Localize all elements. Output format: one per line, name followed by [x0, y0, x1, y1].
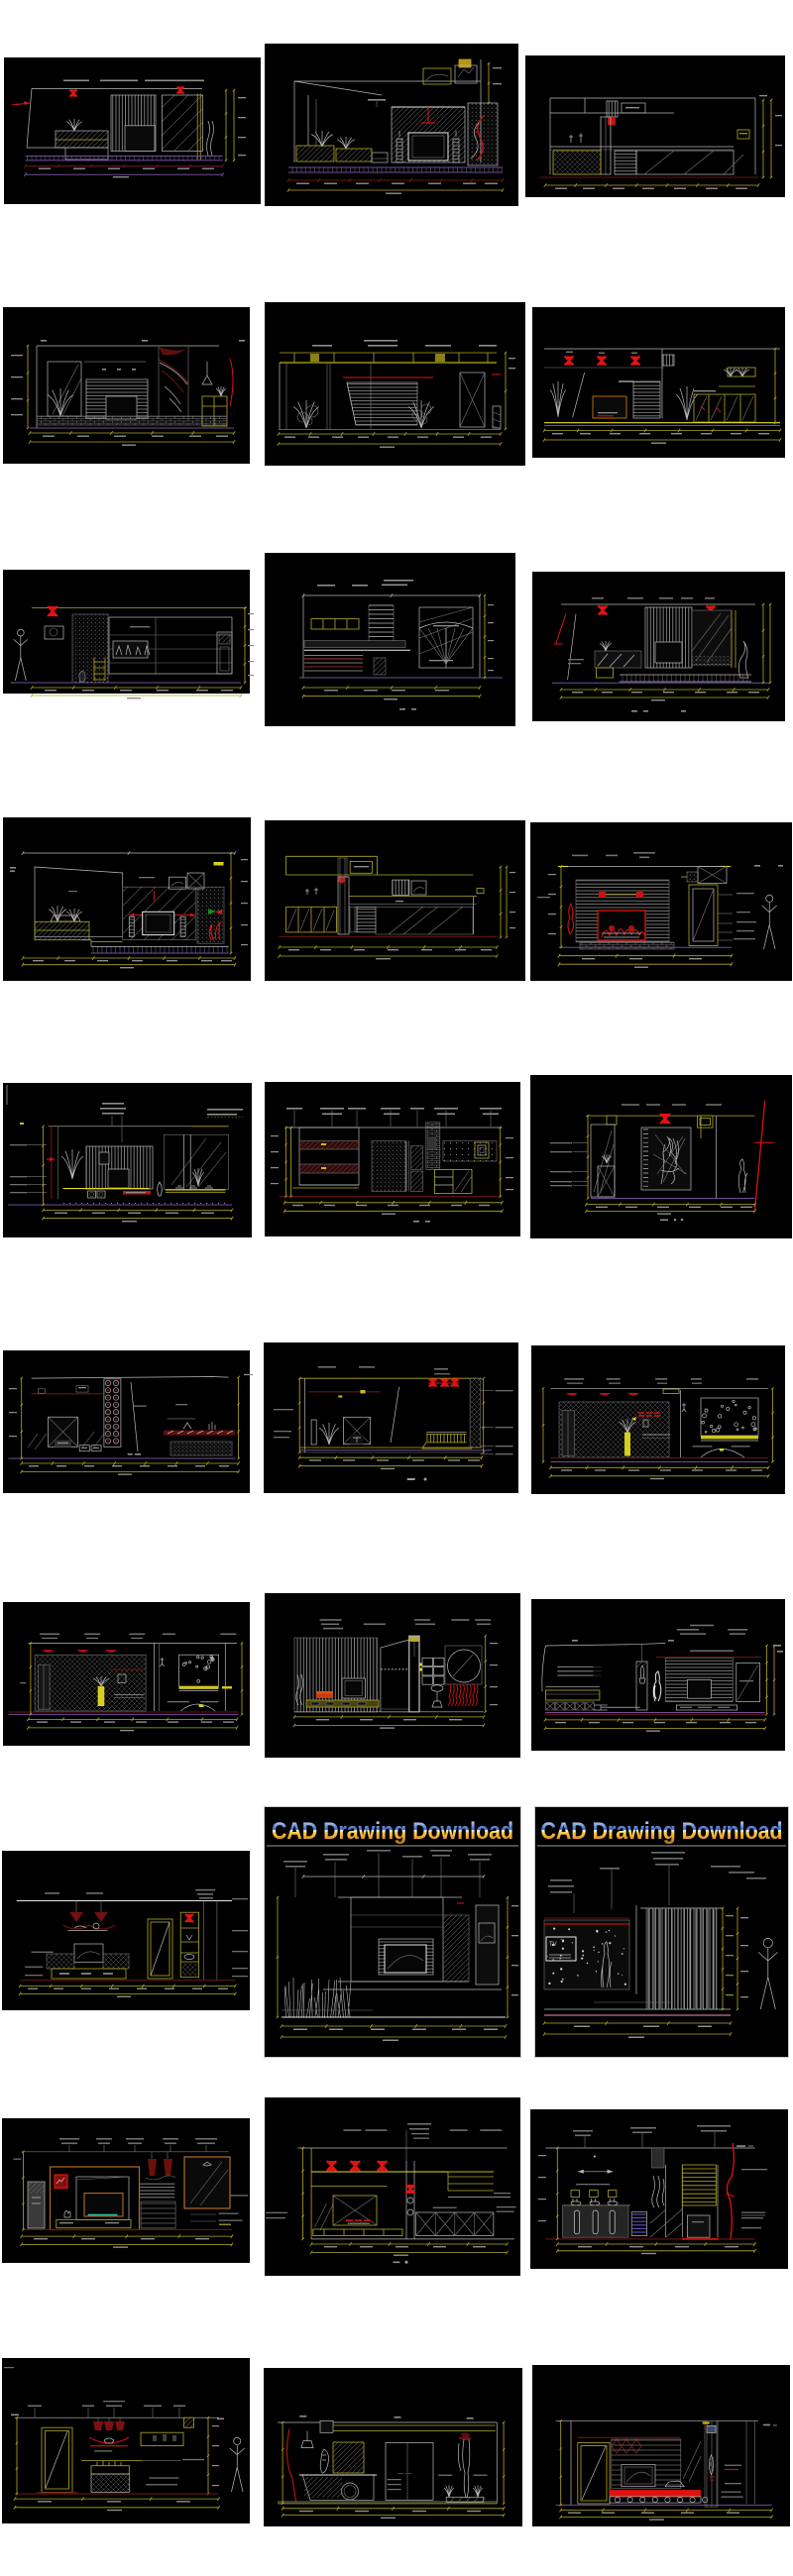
svg-text:CAD Drawing Download: CAD Drawing Download [272, 1818, 513, 1845]
svg-text:CAD Drawing Download: CAD Drawing Download [541, 1818, 783, 1845]
svg-text:TV: TV [549, 1942, 557, 1948]
